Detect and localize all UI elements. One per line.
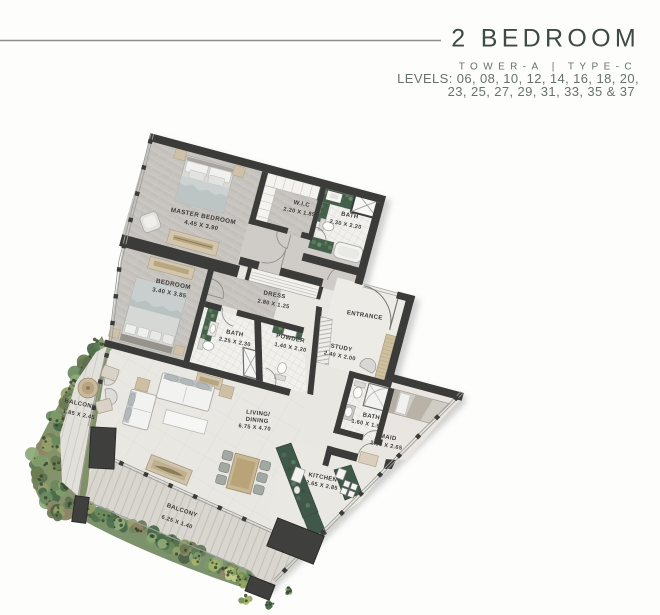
svg-text:2 BEDROOM: 2 BEDROOM (451, 25, 640, 53)
svg-text:23, 25, 27, 29, 31, 33, 35 & 3: 23, 25, 27, 29, 31, 33, 35 & 37 (448, 84, 635, 99)
